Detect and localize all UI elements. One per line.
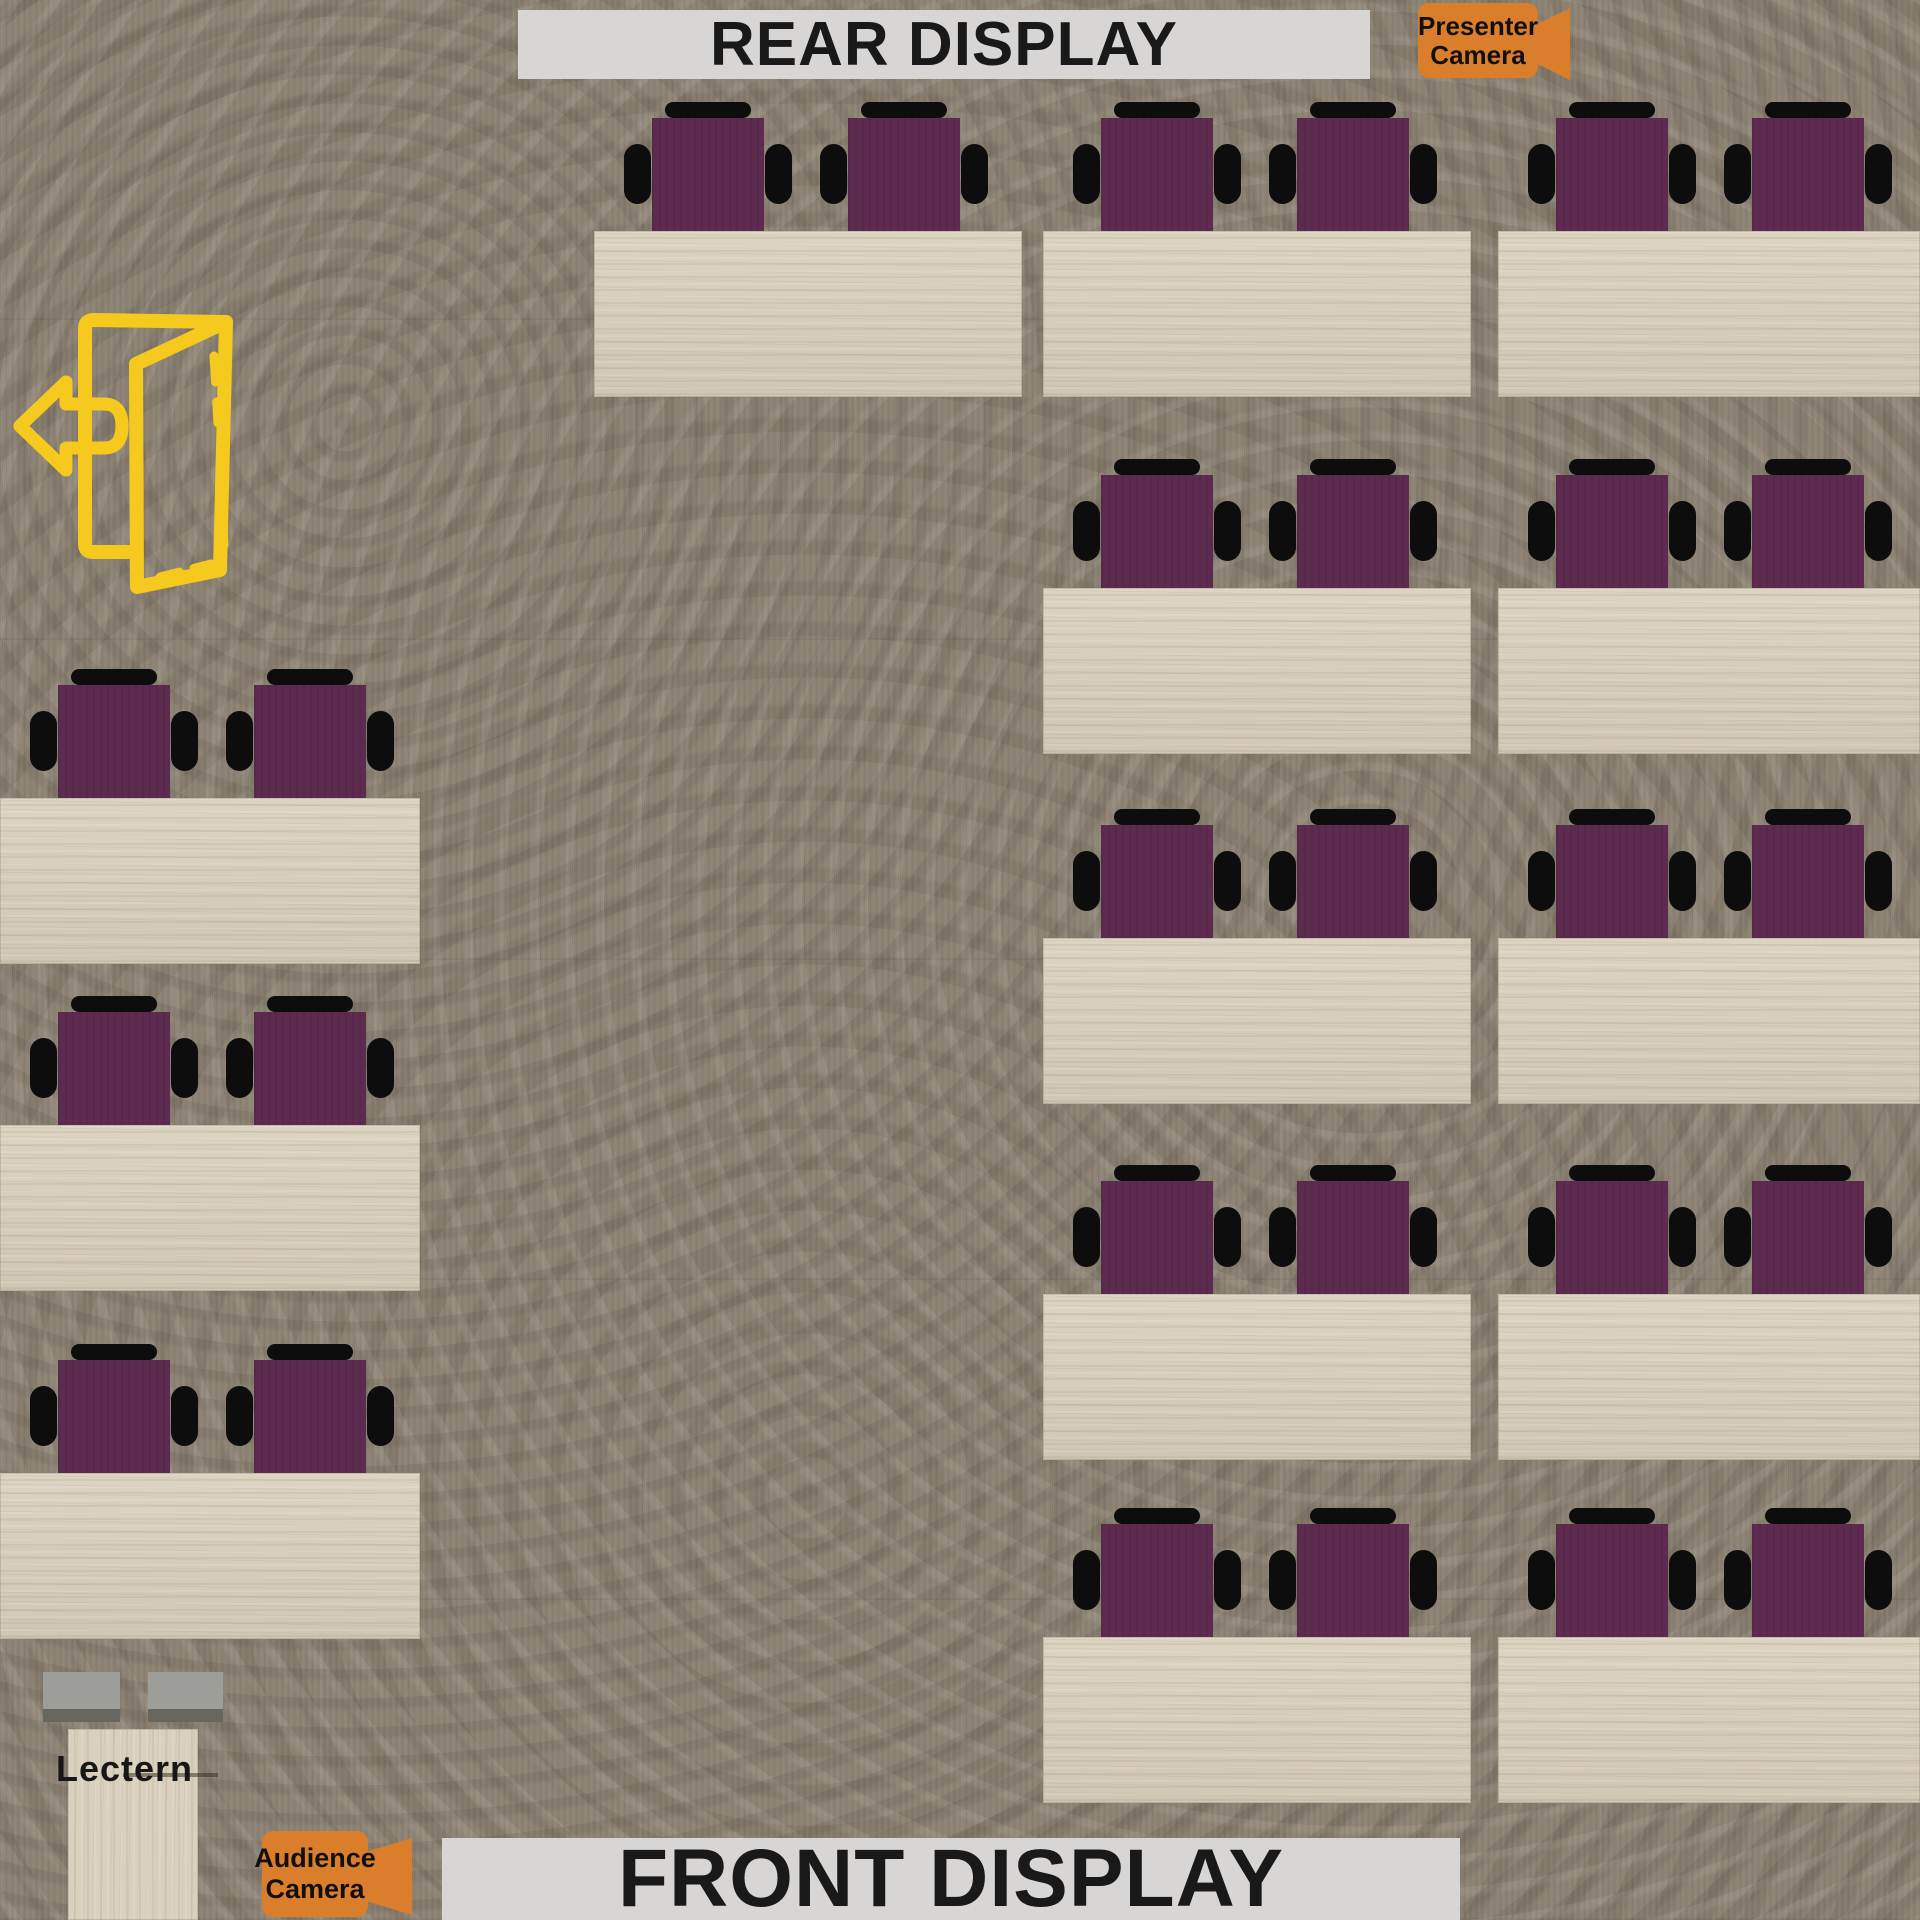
audience-camera-line1: Audience bbox=[254, 1843, 376, 1874]
chair-armrest-right bbox=[1214, 1207, 1241, 1267]
chair-armrest-right bbox=[367, 711, 394, 771]
table-right-inner-2 bbox=[1043, 588, 1471, 754]
chair-backrest bbox=[1765, 459, 1851, 475]
chair-backrest bbox=[1310, 1508, 1396, 1524]
chair-armrest-left bbox=[1528, 144, 1555, 204]
presenter-camera-line1: Presenter bbox=[1418, 12, 1538, 41]
lectern-monitor bbox=[148, 1672, 223, 1709]
chair bbox=[1297, 825, 1409, 938]
chair-armrest-right bbox=[171, 711, 198, 771]
table-right-outer-3 bbox=[1498, 938, 1920, 1104]
chair-armrest-right bbox=[1214, 1550, 1241, 1610]
chair bbox=[1556, 118, 1668, 231]
table-left-1 bbox=[0, 798, 420, 964]
chair bbox=[58, 1012, 170, 1125]
chair-armrest-left bbox=[1073, 1550, 1100, 1610]
chair-backrest bbox=[1310, 102, 1396, 118]
chair-armrest-right bbox=[1865, 1550, 1892, 1610]
front-display-label: FRONT DISPLAY bbox=[618, 1832, 1284, 1920]
chair bbox=[254, 1360, 366, 1473]
chair-armrest-left bbox=[1269, 501, 1296, 561]
table-right-inner-4 bbox=[1043, 1294, 1471, 1460]
chair-armrest-left bbox=[1528, 1550, 1555, 1610]
table-left-2 bbox=[0, 1125, 420, 1291]
chair-backrest bbox=[1114, 102, 1200, 118]
chair-armrest-right bbox=[1669, 144, 1696, 204]
presenter-camera-label: Presenter Camera bbox=[1418, 3, 1538, 78]
chair bbox=[1556, 1524, 1668, 1637]
chair-armrest-right bbox=[1214, 851, 1241, 911]
chair-armrest-right bbox=[1669, 1550, 1696, 1610]
chair-backrest bbox=[71, 669, 157, 685]
chair-armrest-right bbox=[1410, 501, 1437, 561]
chair bbox=[1101, 118, 1213, 231]
chair-armrest-left bbox=[1528, 1207, 1555, 1267]
chair-armrest-right bbox=[171, 1038, 198, 1098]
chair-backrest bbox=[1310, 809, 1396, 825]
table-right-outer-2 bbox=[1498, 588, 1920, 754]
chair-armrest-left bbox=[1269, 1550, 1296, 1610]
chair-backrest bbox=[267, 669, 353, 685]
chair bbox=[254, 685, 366, 798]
exit-door-icon bbox=[8, 298, 260, 596]
chair-backrest bbox=[1569, 459, 1655, 475]
chair-backrest bbox=[267, 996, 353, 1012]
chair-armrest-left bbox=[1528, 851, 1555, 911]
chair-backrest bbox=[1114, 1508, 1200, 1524]
chair bbox=[848, 118, 960, 231]
chair-backrest bbox=[1569, 1508, 1655, 1524]
chair-backrest bbox=[1114, 1165, 1200, 1181]
chair-armrest-left bbox=[1724, 851, 1751, 911]
chair-armrest-right bbox=[1865, 1207, 1892, 1267]
chair bbox=[1556, 1181, 1668, 1294]
chair-backrest bbox=[1114, 459, 1200, 475]
chair-armrest-left bbox=[1724, 501, 1751, 561]
chair-armrest-right bbox=[367, 1386, 394, 1446]
chair bbox=[652, 118, 764, 231]
chair-armrest-right bbox=[1214, 144, 1241, 204]
chair-armrest-right bbox=[765, 144, 792, 204]
chair-armrest-right bbox=[1410, 144, 1437, 204]
front-display-banner: FRONT DISPLAY bbox=[442, 1838, 1460, 1920]
chair-armrest-right bbox=[961, 144, 988, 204]
chair-backrest bbox=[1765, 1165, 1851, 1181]
chair-armrest-left bbox=[1073, 851, 1100, 911]
chair-armrest-right bbox=[171, 1386, 198, 1446]
chair-armrest-left bbox=[1073, 501, 1100, 561]
chair bbox=[254, 1012, 366, 1125]
chair-armrest-left bbox=[1528, 501, 1555, 561]
lectern-label: Lectern bbox=[56, 1748, 193, 1790]
chair-armrest-right bbox=[1865, 501, 1892, 561]
chair-armrest-left bbox=[226, 1386, 253, 1446]
table-right-outer-1 bbox=[1498, 231, 1920, 397]
chair-armrest-left bbox=[1269, 144, 1296, 204]
chair-armrest-left bbox=[226, 711, 253, 771]
chair-armrest-left bbox=[624, 144, 651, 204]
chair bbox=[1556, 825, 1668, 938]
chair bbox=[1752, 1181, 1864, 1294]
chair bbox=[1101, 475, 1213, 588]
chair-backrest bbox=[1569, 102, 1655, 118]
rear-display-banner: REAR DISPLAY bbox=[518, 10, 1370, 79]
chair-armrest-left bbox=[226, 1038, 253, 1098]
chair-backrest bbox=[1569, 1165, 1655, 1181]
audience-camera: Audience Camera bbox=[262, 1831, 368, 1917]
chair-armrest-left bbox=[30, 1038, 57, 1098]
chair-backrest bbox=[861, 102, 947, 118]
chair-armrest-left bbox=[1073, 1207, 1100, 1267]
chair bbox=[1101, 1181, 1213, 1294]
chair-armrest-left bbox=[1269, 1207, 1296, 1267]
audience-camera-line2: Camera bbox=[265, 1874, 364, 1905]
table-right-inner-1 bbox=[1043, 231, 1471, 397]
rear-display-label: REAR DISPLAY bbox=[710, 9, 1178, 80]
chair-backrest bbox=[1310, 1165, 1396, 1181]
chair-armrest-right bbox=[1410, 1550, 1437, 1610]
chair-armrest-left bbox=[30, 711, 57, 771]
table-right-outer-5 bbox=[1498, 1637, 1920, 1803]
chair-armrest-left bbox=[1724, 1550, 1751, 1610]
chair bbox=[1297, 1524, 1409, 1637]
chair-armrest-left bbox=[30, 1386, 57, 1446]
chair-armrest-left bbox=[1724, 144, 1751, 204]
chair-armrest-right bbox=[1669, 501, 1696, 561]
lectern-monitor bbox=[43, 1672, 120, 1709]
chair-backrest bbox=[665, 102, 751, 118]
chair-backrest bbox=[1114, 809, 1200, 825]
chair bbox=[1297, 475, 1409, 588]
chair-armrest-left bbox=[820, 144, 847, 204]
chair bbox=[1752, 118, 1864, 231]
chair-backrest bbox=[71, 1344, 157, 1360]
chair-armrest-left bbox=[1073, 144, 1100, 204]
chair-armrest-left bbox=[1269, 851, 1296, 911]
table-right-outer-4 bbox=[1498, 1294, 1920, 1460]
chair-armrest-right bbox=[1865, 851, 1892, 911]
chair-backrest bbox=[71, 996, 157, 1012]
chair-armrest-right bbox=[1410, 851, 1437, 911]
floor-plan: REAR DISPLAY FRONT DISPLAY Presenter Cam… bbox=[0, 0, 1920, 1920]
chair bbox=[1297, 1181, 1409, 1294]
chair-armrest-right bbox=[1214, 501, 1241, 561]
chair-armrest-right bbox=[1410, 1207, 1437, 1267]
chair-backrest bbox=[267, 1344, 353, 1360]
audience-camera-label: Audience Camera bbox=[262, 1831, 368, 1917]
chair-armrest-right bbox=[1669, 851, 1696, 911]
chair bbox=[1752, 1524, 1864, 1637]
chair-armrest-left bbox=[1724, 1207, 1751, 1267]
presenter-camera-lens-icon bbox=[1535, 8, 1570, 80]
chair bbox=[1556, 475, 1668, 588]
table-center-1 bbox=[594, 231, 1022, 397]
chair-backrest bbox=[1765, 809, 1851, 825]
chair bbox=[1297, 118, 1409, 231]
presenter-camera-line2: Camera bbox=[1430, 41, 1525, 70]
chair-backrest bbox=[1569, 809, 1655, 825]
chair bbox=[58, 1360, 170, 1473]
chair bbox=[1101, 1524, 1213, 1637]
chair bbox=[1752, 475, 1864, 588]
table-right-inner-3 bbox=[1043, 938, 1471, 1104]
chair-armrest-right bbox=[1669, 1207, 1696, 1267]
table-right-inner-5 bbox=[1043, 1637, 1471, 1803]
chair bbox=[58, 685, 170, 798]
chair-backrest bbox=[1310, 459, 1396, 475]
chair-backrest bbox=[1765, 102, 1851, 118]
chair bbox=[1101, 825, 1213, 938]
chair bbox=[1752, 825, 1864, 938]
chair-backrest bbox=[1765, 1508, 1851, 1524]
chair-armrest-right bbox=[1865, 144, 1892, 204]
presenter-camera: Presenter Camera bbox=[1418, 3, 1538, 78]
chair-armrest-right bbox=[367, 1038, 394, 1098]
table-left-3 bbox=[0, 1473, 420, 1639]
